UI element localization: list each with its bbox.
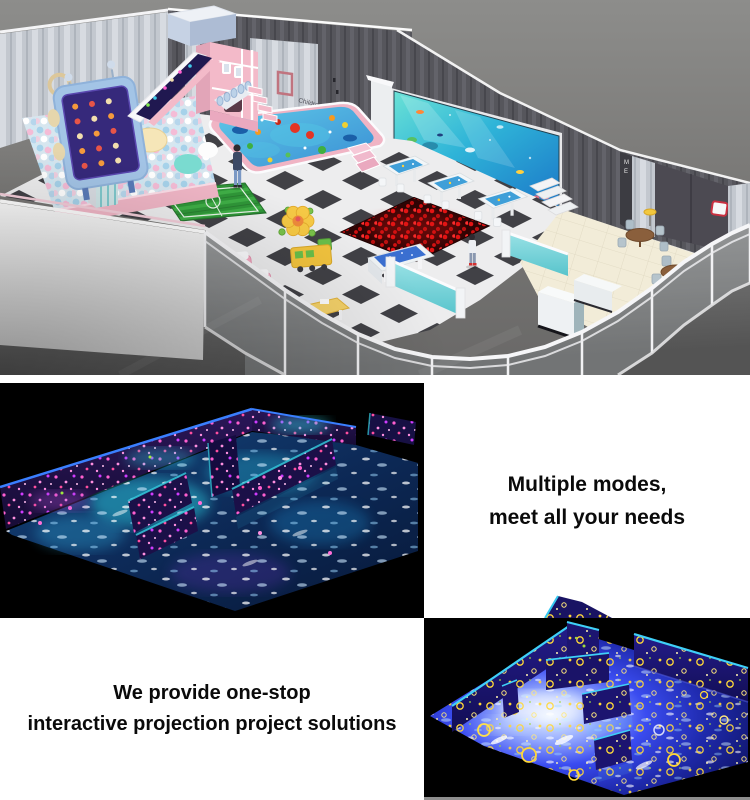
modes-caption-line1: Multiple modes, — [508, 468, 667, 501]
playground-render: Children's Paradise — [0, 0, 750, 375]
product-detail-composite: Children's Paradise — [0, 0, 750, 800]
wall-overflow-wedge — [545, 596, 612, 618]
solutions-scene — [424, 590, 750, 800]
modes-caption-line2: meet all your needs — [489, 501, 685, 534]
corner-vignette — [0, 0, 750, 375]
solutions-caption-line1: We provide one-stop — [113, 678, 310, 709]
solutions-caption-line2: interactive projection project solutions — [28, 709, 397, 740]
modes-scene — [0, 383, 424, 618]
projection-room-render-2 — [424, 590, 750, 800]
playground-scene: Children's Paradise — [0, 0, 750, 375]
solutions-caption: We provide one-stop interactive projecti… — [0, 618, 424, 800]
modes-caption: Multiple modes, meet all your needs — [424, 383, 750, 618]
projection-room-render-1 — [0, 383, 424, 618]
